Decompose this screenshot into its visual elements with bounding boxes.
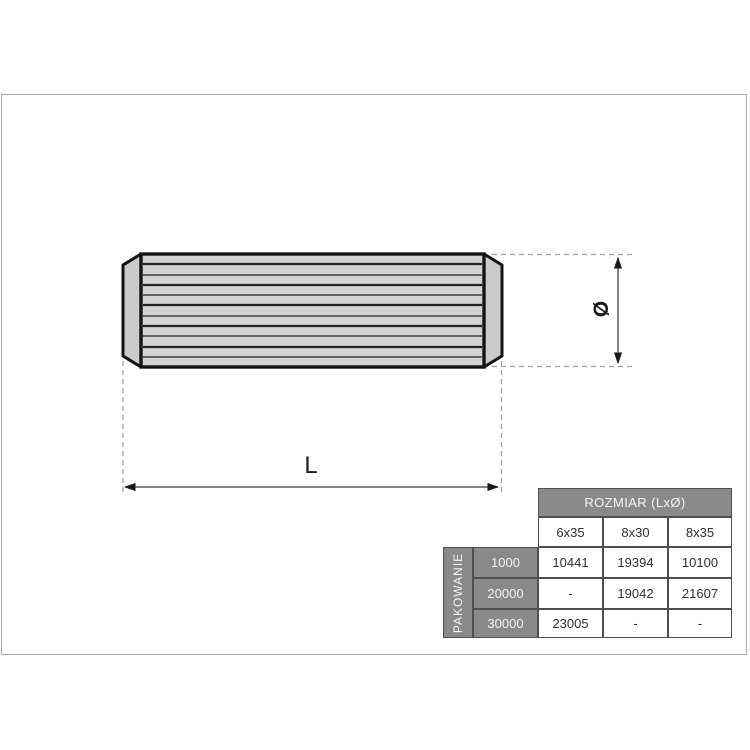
value-1000-8x35: 10100 xyxy=(668,547,732,578)
value-1000-6x35: 10441 xyxy=(538,547,603,578)
drawing-frame: Ø L ROZMIAR (LxØ) 6x35 8x30 8x35 PAKOWAN… xyxy=(1,94,747,655)
dowel-left-chamfer xyxy=(123,254,141,367)
page: Ø L ROZMIAR (LxØ) 6x35 8x30 8x35 PAKOWAN… xyxy=(0,0,750,750)
value-30000-8x35: - xyxy=(668,609,732,638)
value-30000-8x30: - xyxy=(603,609,668,638)
qty-row-20000: 20000 xyxy=(473,578,538,609)
dowel-right-chamfer xyxy=(484,254,502,367)
packaging-size-table: ROZMIAR (LxØ) 6x35 8x30 8x35 PAKOWANIE 1… xyxy=(443,488,732,638)
length-label: L xyxy=(304,452,317,479)
size-column-6x35: 6x35 xyxy=(538,517,603,547)
value-20000-8x30: 19042 xyxy=(603,578,668,609)
diameter-symbol: Ø xyxy=(589,301,612,317)
value-1000-8x30: 19394 xyxy=(603,547,668,578)
size-header-cell: ROZMIAR (LxØ) xyxy=(538,488,732,517)
packaging-label: PAKOWANIE xyxy=(451,552,465,632)
value-30000-6x35: 23005 xyxy=(538,609,603,638)
qty-row-30000: 30000 xyxy=(473,609,538,638)
packaging-label-cell: PAKOWANIE xyxy=(443,547,473,638)
qty-row-1000: 1000 xyxy=(473,547,538,578)
value-20000-8x35: 21607 xyxy=(668,578,732,609)
size-column-8x30: 8x30 xyxy=(603,517,668,547)
value-20000-6x35: - xyxy=(538,578,603,609)
dowel-body xyxy=(141,254,484,367)
size-column-8x35: 8x35 xyxy=(668,517,732,547)
